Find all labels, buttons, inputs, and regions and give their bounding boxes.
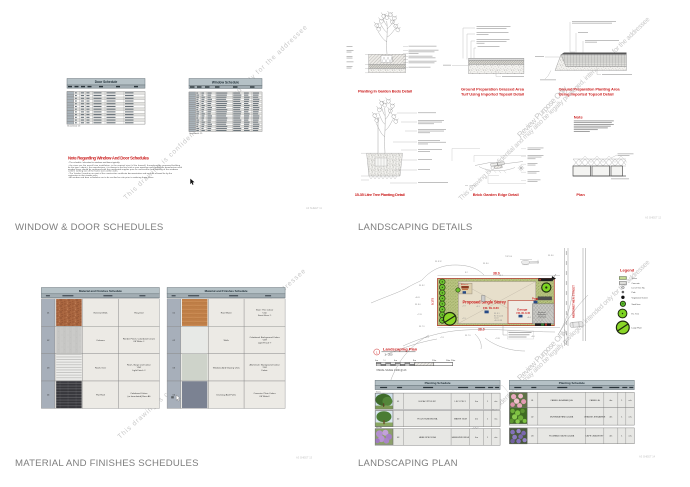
svg-text:Grand total: 13: Grand total: 13	[67, 125, 81, 128]
svg-text:+8.0: +8.0	[531, 336, 535, 338]
svg-text:Render Finish. Colorbond Cream: Render Finish. Colorbond Cream	[123, 337, 155, 340]
svg-text:1 : 200: 1 : 200	[385, 353, 393, 357]
svg-text:Ex. Tree: Ex. Tree	[632, 314, 640, 316]
svg-text:A3 SHEET 14: A3 SHEET 14	[639, 455, 656, 459]
svg-text:Aluminium: Background Colour: Aluminium: Background Colour	[250, 363, 280, 366]
svg-text:RL 8.12: RL 8.12	[435, 261, 442, 263]
svg-text:Light Finish ®: Light Finish ®	[132, 369, 146, 372]
svg-text:EUCALYPTUS SP.: EUCALYPTUS SP.	[419, 400, 437, 403]
svg-text:FICUS RUBIGINOSA: FICUS RUBIGINOSA	[417, 418, 437, 421]
svg-text:Alfresco: Alfresco	[461, 283, 469, 286]
svg-text:Door Schedule: Door Schedule	[95, 80, 118, 84]
svg-text:Note: Note	[574, 115, 584, 120]
svg-text:Stain: This Colour: Stain: This Colour	[256, 309, 274, 312]
svg-text:RL 8.2: RL 8.2	[419, 285, 425, 287]
svg-text:CAMELLIA: CAMELLIA	[589, 399, 600, 402]
svg-text:Flat Roof: Flat Roof	[96, 394, 105, 397]
svg-text:Concrete: Plain Colour: Concrete: Plain Colour	[254, 392, 276, 395]
svg-text:HEBE/VERONICA: HEBE/VERONICA	[452, 436, 470, 439]
svg-text:CAPE LEADWORT: CAPE LEADWORT	[586, 435, 605, 438]
svg-text:Note Regarding Window And Door: Note Regarding Window And Door Schedules	[68, 156, 150, 161]
svg-text:Driveway: Driveway	[538, 315, 546, 318]
svg-text:4m: 4m	[475, 401, 478, 403]
svg-text:Windows And Glazing Units: Windows And Glazing Units	[213, 366, 241, 369]
svg-text:8.2: 8.2	[465, 272, 468, 274]
svg-text:List of Tree No.: List of Tree No.	[632, 287, 646, 290]
svg-text:Off White ®: Off White ®	[133, 340, 145, 343]
svg-text:Off White®: Off White®	[259, 395, 270, 398]
svg-text:Landscaping Plan: Landscaping Plan	[383, 347, 418, 352]
svg-text:0m: 0m	[375, 360, 378, 362]
svg-text:Large Plant: Large Plant	[632, 327, 643, 330]
svg-text:Brick Garden Edge Detail: Brick Garden Edge Detail	[473, 192, 519, 197]
svg-text:20m: 20m	[451, 360, 455, 362]
svg-text:Window Schedule: Window Schedule	[212, 80, 239, 84]
svg-text:Columns: Columns	[96, 340, 106, 342]
svg-text:Light Finish ®: Light Finish ®	[258, 342, 272, 345]
svg-text:Material and Finishes Schedule: Material and Finishes Schedule	[205, 289, 248, 293]
svg-text:- The schedule / elevation for: - The schedule / elevation for windows a…	[68, 161, 121, 164]
svg-text:(or formulated) Bass Alt: (or formulated) Bass Alt	[127, 395, 150, 398]
svg-text:RL 7.9: RL 7.9	[465, 335, 471, 337]
svg-text:WATER GUM: WATER GUM	[454, 418, 467, 421]
svg-text:A3 SHEET 13: A3 SHEET 13	[296, 456, 313, 460]
svg-text:12m: 12m	[432, 360, 436, 362]
svg-text:'Cliff': 'Cliff'	[262, 367, 267, 369]
svg-text:TOP 8.4: TOP 8.4	[505, 256, 512, 258]
svg-text:Vegetation Screen: Vegetation Screen	[632, 296, 648, 299]
svg-text:MEREWETHER STREET: MEREWETHER STREET	[572, 285, 576, 318]
svg-text:Concrete: Concrete	[632, 282, 641, 285]
svg-text:Colorbond Colour: Colorbond Colour	[130, 392, 147, 395]
svg-text:HEBE SPECIOSA: HEBE SPECIOSA	[419, 436, 436, 439]
svg-text:A3 SHEET 11: A3 SHEET 11	[306, 206, 322, 210]
svg-text:+8.1: +8.1	[476, 306, 480, 308]
svg-text:A3 SHEET 12: A3 SHEET 12	[645, 216, 662, 220]
svg-text:Colorbond: Background Colour: Colorbond: Background Colour	[250, 336, 280, 339]
svg-text:+7.85: +7.85	[495, 338, 500, 340]
svg-text:8m: 8m	[413, 360, 416, 362]
svg-text:Turf Using Imported Topsoil De: Turf Using Imported Topsoil Detail	[461, 91, 524, 96]
svg-text:Driveway And Paths: Driveway And Paths	[216, 394, 236, 397]
svg-text:FFL RL 8.60: FFL RL 8.60	[483, 306, 499, 310]
svg-text:External Walls: External Walls	[94, 312, 109, 315]
svg-text:Walls: Walls	[224, 340, 230, 342]
svg-text:+7.9: +7.9	[462, 318, 466, 320]
svg-text:Planting In Garden Beds Detail: Planting In Garden Beds Detail	[358, 89, 412, 94]
svg-text:Semi Gloss ®: Semi Gloss ®	[258, 314, 272, 317]
svg-text:'Cliff': 'Cliff'	[262, 340, 267, 342]
svg-text:4m: 4m	[394, 360, 397, 362]
svg-text:Small tree: Small tree	[632, 303, 642, 306]
svg-text:4m: 4m	[475, 437, 478, 439]
svg-text:PLUMBAGO AURICULATA: PLUMBAGO AURICULATA	[549, 435, 575, 438]
svg-text:Grass: Grass	[632, 278, 637, 280]
svg-text:Fabric: Fabric	[262, 369, 269, 372]
svg-text:VISUAL SCALE 1:200 @ A3: VISUAL SCALE 1:200 @ A3	[376, 369, 407, 372]
svg-text:Roofs Over: Roofs Over	[95, 366, 106, 369]
svg-text:Planting Schedule: Planting Schedule	[559, 381, 585, 385]
svg-text:Plan: Plan	[576, 192, 585, 197]
svg-text:9.175: 9.175	[431, 298, 435, 305]
svg-text:CAMELLIA SASANQUA: CAMELLIA SASANQUA	[550, 399, 573, 402]
svg-text:+8.6 8.58: +8.6 8.58	[494, 320, 502, 322]
svg-text:4m: 4m	[609, 400, 612, 402]
svg-text:Grand total: 19: Grand total: 19	[189, 132, 203, 135]
svg-text:Material and Finishes Schedule: Material and Finishes Schedule	[79, 289, 122, 293]
svg-text:4m: 4m	[609, 416, 612, 418]
svg-text:Legend: Legend	[620, 268, 635, 273]
svg-text:+8.4: +8.4	[527, 317, 531, 319]
svg-text:Pole: Pole	[632, 292, 637, 294]
svg-text:'Oak': 'Oak'	[262, 312, 267, 314]
svg-text:+7.9: +7.9	[462, 306, 466, 308]
svg-text:Planting Schedule: Planting Schedule	[425, 381, 451, 385]
svg-text:7.6: 7.6	[383, 360, 386, 362]
svg-text:RL 7.9: RL 7.9	[419, 326, 425, 328]
svg-text:Using Imported Topsoil Detail: Using Imported Topsoil Detail	[559, 91, 614, 96]
svg-text:1: 1	[376, 350, 378, 354]
svg-text:FFL RL 8.45: FFL RL 8.45	[517, 312, 531, 315]
svg-text:15-35 Litre Tree Planting Deta: 15-35 Litre Tree Planting Detail	[355, 192, 405, 197]
svg-text:ORANGE JESSAMINE: ORANGE JESSAMINE	[584, 415, 606, 418]
svg-text:LILLY PILLY: LILLY PILLY	[455, 401, 467, 403]
svg-text:16m: 16m	[446, 360, 450, 362]
svg-text:4m: 4m	[609, 436, 612, 438]
svg-text:+7.8: +7.8	[440, 337, 444, 339]
svg-text:RL 8.0: RL 8.0	[483, 263, 489, 265]
svg-text:38.0: 38.0	[493, 272, 500, 276]
svg-text:RL 8.0: RL 8.0	[415, 304, 421, 306]
svg-text:Roof Water: Roof Water	[221, 312, 232, 315]
svg-text:+8.05: +8.05	[415, 297, 420, 299]
svg-text:Roof - Barge and Colour: Roof - Barge and Colour	[127, 363, 151, 366]
svg-text:- All window and door schedule: - All window and door schedules are to b…	[68, 176, 154, 179]
svg-text:+7.95: +7.95	[417, 314, 422, 316]
svg-text:RL 8.6: RL 8.6	[548, 255, 554, 257]
svg-text:4m: 4m	[475, 419, 478, 421]
svg-text:'Cliff': 'Cliff'	[137, 367, 142, 369]
svg-text:MURRAYA PANICULATA: MURRAYA PANICULATA	[550, 415, 574, 418]
svg-text:Recycled: Recycled	[134, 312, 144, 314]
